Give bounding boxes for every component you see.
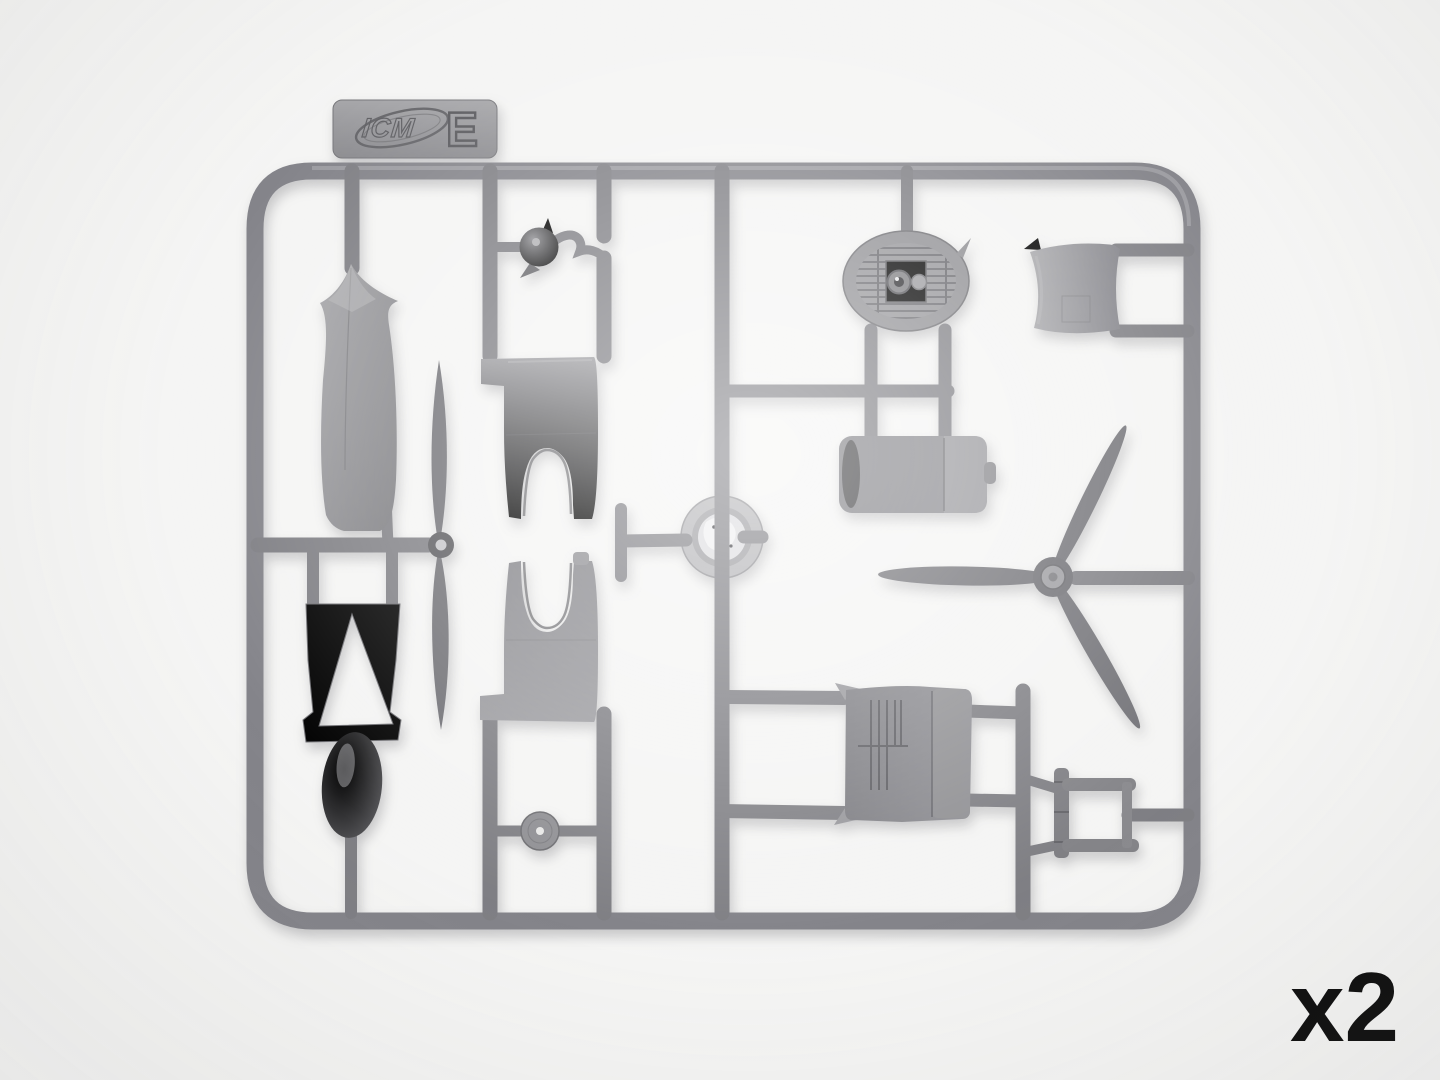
upper-cowling-half (481, 357, 598, 519)
runner-ball-arm-right (556, 235, 604, 257)
fuselage-half (320, 264, 398, 531)
louvered-engine-cylinder (834, 683, 972, 825)
propeller-blade (878, 565, 1054, 587)
photo-canvas: ICM E (0, 0, 1440, 1080)
runner-cylinder-gate-bl (722, 811, 844, 813)
radiator-fin (956, 238, 971, 258)
fuselage-frame-with-cutout (303, 604, 401, 742)
runner-cylinder-gate-br (966, 800, 1023, 801)
runner-cylinder-gate-tl (722, 697, 844, 698)
brand-logo-text: ICM (361, 112, 417, 143)
runner-t-horizontal (622, 540, 686, 541)
propeller-blade (1045, 422, 1133, 580)
quantity-label: x2 (1290, 952, 1399, 1062)
engine-bearer-frame (1054, 768, 1139, 858)
oval-radiator (843, 231, 971, 331)
lower-cowling-half (480, 552, 598, 722)
curved-cowl-panel (1024, 238, 1120, 333)
sprue-tag: ICM E (333, 100, 497, 158)
propeller-blade (1045, 573, 1147, 732)
sprue-letter: E (446, 104, 478, 157)
sprue-photo: ICM E (0, 0, 1440, 1080)
two-blade-propeller (428, 360, 454, 730)
sprue-frame-e: ICM E (255, 100, 1192, 921)
wheel-disc (521, 812, 559, 850)
spinner-ball (520, 218, 559, 278)
runner-bearer-gate-bottom (1025, 845, 1058, 852)
cylinder-drum (839, 436, 996, 513)
float-pontoon (317, 730, 386, 841)
runner-cylinder-gate-tr (966, 711, 1023, 713)
